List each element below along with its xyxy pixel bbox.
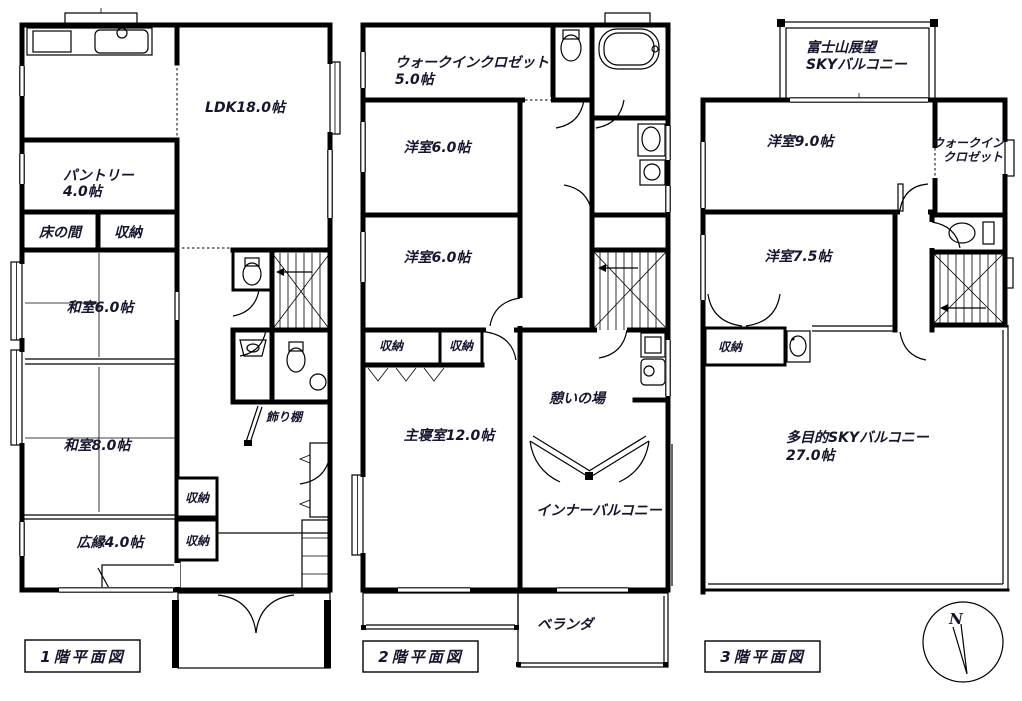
room-label-closet: 収納 xyxy=(379,339,405,353)
room-label-washitsu6: 和室6.0帖 xyxy=(67,299,137,316)
room-label-closet: 収納 xyxy=(185,491,211,505)
hall-closet xyxy=(300,443,330,517)
floor3-windows xyxy=(701,93,1014,300)
room-label-multi-balcony: 多目的SKYバルコニー xyxy=(786,429,930,446)
room-label-wic: ウォークインクロゼット xyxy=(395,54,549,71)
floorplan-drawing: LDK18.0帖 パントリー 4.0帖 床の間 収納 和室6.0帖 和室8.0帖… xyxy=(0,0,1022,701)
entry-door-arc xyxy=(218,595,256,633)
room-label-master-bedroom: 主寝室12.0帖 xyxy=(404,427,498,444)
toilet-icon xyxy=(949,222,994,244)
room-label-youshitsu9: 洋室9.0帖 xyxy=(767,133,837,150)
floor3-plan: 富士山展望 SKYバルコニー 洋室9.0帖 ウォークイン クロゼット 洋室7.5… xyxy=(701,19,1014,682)
room-label-youshitsu6: 洋室6.0帖 xyxy=(404,249,474,266)
room-label-ikoi: 憩いの場 xyxy=(548,390,607,407)
room-label-wic: ウォークイン xyxy=(932,136,1005,150)
room-label-tokonoma: 床の間 xyxy=(38,224,83,241)
closet-door-arc xyxy=(708,294,742,326)
floorplan-canvas: LDK18.0帖 パントリー 4.0帖 床の間 収納 和室6.0帖 和室8.0帖… xyxy=(0,0,1022,701)
shoe-cabinet xyxy=(302,520,330,590)
toilet-icon xyxy=(561,30,581,61)
bathtub-icon xyxy=(599,29,659,69)
closet-door-marks xyxy=(368,368,444,381)
room-label-hiroen: 広縁4.0帖 xyxy=(77,534,147,551)
entry-door-arc xyxy=(256,595,294,633)
stairs-arrow xyxy=(940,304,948,312)
compass-needle xyxy=(953,624,967,674)
door-arcs xyxy=(486,100,627,360)
room-label-multi-balcony-size: 27.0帖 xyxy=(786,447,838,464)
room-label-closet: 収納 xyxy=(449,339,475,353)
floor3-title: 3階平面図 xyxy=(720,648,805,666)
room-label-ldk: LDK18.0帖 xyxy=(205,99,288,116)
floor2-title-box: 2階平面図 xyxy=(363,641,478,672)
kitchen-sink-icon xyxy=(95,30,148,53)
floor1-plan: LDK18.0帖 パントリー 4.0帖 床の間 収納 和室6.0帖 和室8.0帖… xyxy=(11,8,340,672)
stairs xyxy=(272,253,330,330)
washing-machine-icon xyxy=(640,160,665,185)
tatami-lines xyxy=(22,253,177,519)
stairs-arrow xyxy=(598,264,606,272)
room-label-closet: 収納 xyxy=(185,534,211,548)
toilet-icon xyxy=(243,258,261,285)
toilet-icon xyxy=(287,342,326,390)
porch-wall xyxy=(324,600,331,668)
washbasin-icon xyxy=(638,124,665,156)
kazaridana-shelf xyxy=(244,406,262,446)
room-label-inner-balcony: インナーバルコニー xyxy=(536,503,663,519)
room-label-pantry-size: 4.0帖 xyxy=(62,183,105,200)
room-label-kazaridana: 飾り棚 xyxy=(266,410,304,424)
room-label-pantry: パントリー xyxy=(63,168,135,184)
inner-balcony-doors xyxy=(530,436,649,482)
room-label-wic: クロゼット xyxy=(943,150,1003,164)
floor1-title: 1階平面図 xyxy=(40,648,125,666)
floor2-plan: ウォークインクロゼット 5.0帖 洋室6.0帖 洋室6.0帖 収納 収納 主寝室… xyxy=(352,13,672,672)
north-compass: N xyxy=(923,602,1003,682)
room-label-washitsu8: 和室8.0帖 xyxy=(64,437,134,454)
room-label-youshitsu6: 洋室6.0帖 xyxy=(404,139,474,156)
room-label-closet: 収納 xyxy=(114,224,144,241)
porch-wall xyxy=(172,600,179,668)
kitchen-counter xyxy=(27,28,152,55)
room-label-sky-balcony: SKYバルコニー xyxy=(806,57,908,73)
room-label-sky-view: 富士山展望 xyxy=(806,39,878,56)
room-label-wic-size: 5.0帖 xyxy=(395,71,437,88)
vanity-basin-icon xyxy=(641,333,665,385)
entrance-porch-tile xyxy=(178,593,330,668)
room-label-closet: 収納 xyxy=(718,340,744,354)
north-label: N xyxy=(948,610,964,628)
stairs xyxy=(592,250,668,330)
closet-door-arc xyxy=(746,294,780,326)
stairs xyxy=(932,252,1005,325)
corner-basin-icon xyxy=(310,374,326,390)
washbasin-icon xyxy=(787,331,810,362)
genkan-step-line xyxy=(98,568,110,590)
room-label-youshitsu75: 洋室7.5帖 xyxy=(765,248,835,265)
floor3-title-box: 3階平面図 xyxy=(705,641,820,672)
floor1-title-box: 1階平面図 xyxy=(25,640,140,672)
stove-icon xyxy=(33,31,71,52)
genkan-tile-floor xyxy=(102,565,178,590)
floor2-title: 2階平面図 xyxy=(378,648,463,666)
room-label-veranda: ベランダ xyxy=(537,616,596,633)
